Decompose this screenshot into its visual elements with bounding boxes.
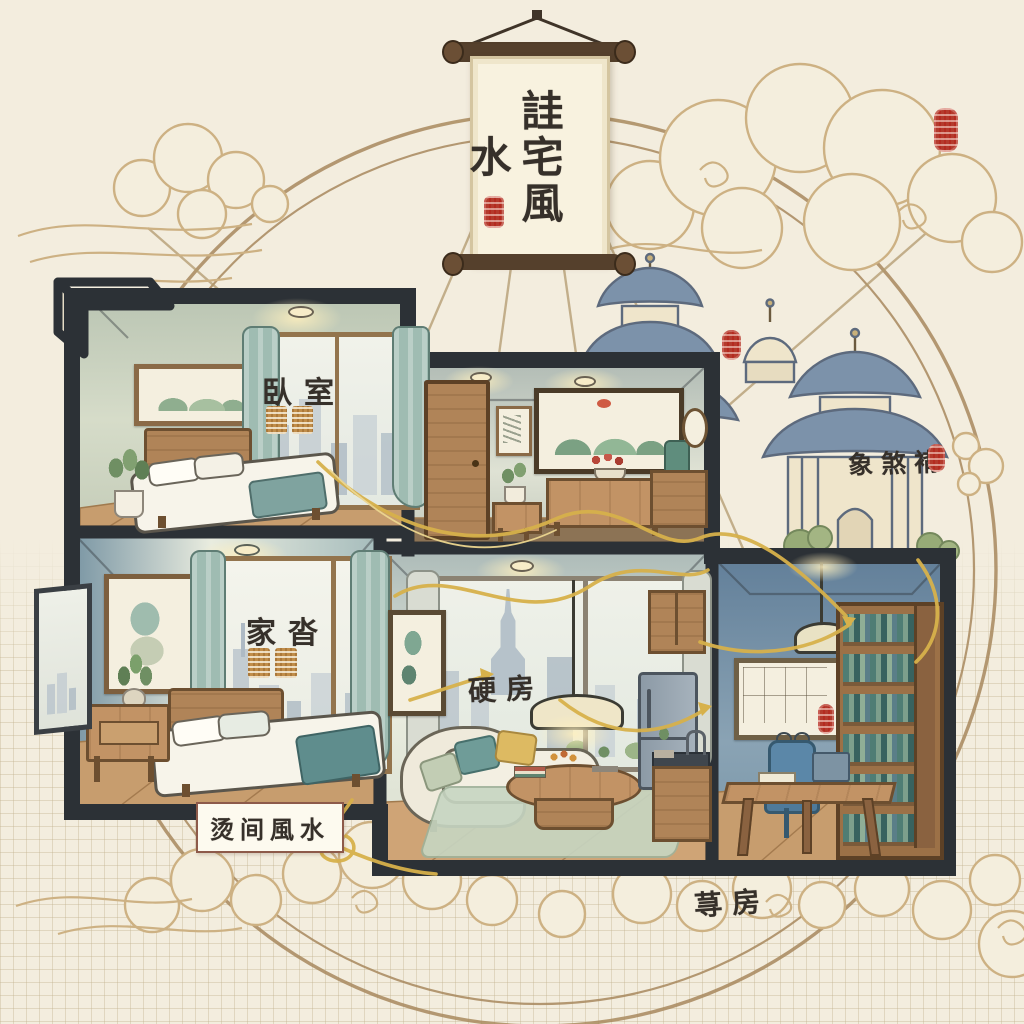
room-bedroom-upper <box>92 298 398 522</box>
bed-pillow-2 <box>217 710 271 740</box>
room-entry-hall <box>414 366 706 542</box>
wall-cabinet <box>648 590 706 654</box>
painting-mountains <box>543 419 667 455</box>
lamp-cabinet <box>650 458 702 534</box>
orange-seal-block <box>275 648 297 678</box>
laptop <box>812 752 850 782</box>
red-seal-stamp <box>484 196 504 228</box>
bonsai <box>592 744 618 772</box>
pendant-cord <box>572 580 575 698</box>
table-leg <box>524 528 529 542</box>
red-seal-stamp <box>928 444 945 472</box>
bed-leg <box>158 516 166 528</box>
desk-leg <box>737 798 754 856</box>
orange-seal-block <box>248 648 270 678</box>
label-study: 荨房 <box>693 879 772 924</box>
scroll-rod-bottom <box>452 254 622 270</box>
faucet <box>686 730 706 755</box>
desk <box>724 778 888 856</box>
fruit-plate <box>546 750 582 764</box>
ink-sketch <box>503 415 521 443</box>
entry-door <box>424 380 490 540</box>
ceiling-light <box>234 544 260 556</box>
room-study <box>718 562 942 862</box>
nightstand-body <box>86 704 170 762</box>
wall-clock <box>682 408 708 448</box>
cabinet-divider <box>675 593 678 645</box>
bed-leg <box>182 784 190 797</box>
nightstand-leg <box>94 756 100 782</box>
label-room-fengshui-text: 烫间風水 <box>210 818 330 844</box>
scroll-title-text: 詿宅風水 <box>512 70 564 246</box>
label-room-fengshui-box: 烫间風水 <box>196 802 344 853</box>
red-seal-stamp <box>934 108 958 152</box>
abstract-painting <box>388 610 446 716</box>
ceiling-light <box>574 376 596 387</box>
fridge-handle <box>647 689 651 729</box>
chart-grid <box>743 667 827 723</box>
bed <box>152 688 382 798</box>
rod-knob <box>614 252 636 276</box>
tower-spire <box>241 623 245 657</box>
plant-side-table <box>492 462 536 536</box>
nightstand-leg <box>148 756 154 782</box>
bed-leg <box>352 774 360 787</box>
table-leg <box>498 528 503 542</box>
ceiling-light <box>510 560 534 572</box>
console-leg <box>554 522 560 536</box>
desk-leg <box>802 800 812 854</box>
potted-plant <box>100 448 154 518</box>
rod-knob <box>442 40 464 64</box>
door-knob <box>472 460 479 467</box>
books-stack <box>514 766 546 778</box>
herb-pot <box>654 726 674 758</box>
painting-abstract <box>397 623 429 697</box>
painting-hills <box>145 385 245 411</box>
rod-knob <box>614 40 636 64</box>
desk-leg <box>862 798 881 856</box>
plant-pot <box>114 490 144 518</box>
room-bedroom-lower <box>78 538 374 806</box>
fengshui-home-illustration: { "scene": { "type": "illustration", "st… <box>0 0 1024 1024</box>
table-base <box>534 798 614 830</box>
nightstand <box>86 678 164 788</box>
rod-knob <box>442 252 464 276</box>
shelf-side-panel <box>914 606 935 848</box>
pendant-glow <box>788 552 858 582</box>
label-living-kitchen: 硬房 <box>467 666 545 710</box>
shutter-reflection <box>43 664 77 718</box>
red-seal-stamp <box>818 704 834 734</box>
kitchen-counter <box>652 752 706 844</box>
table-lamp <box>664 440 690 474</box>
bed <box>132 428 342 524</box>
coffee-table <box>506 750 636 830</box>
bed-leg <box>312 508 320 520</box>
orange-seal-block <box>266 406 287 434</box>
room-living-kitchen <box>386 554 706 862</box>
orange-seal-block <box>292 406 313 434</box>
title-scroll: 詿宅風水 <box>440 8 640 298</box>
small-ink-art <box>496 406 532 456</box>
counter-cabinet <box>652 766 712 842</box>
ceiling-light <box>288 306 314 318</box>
label-bedroom-lower: 家沓 <box>246 608 330 652</box>
painting-red-sun <box>597 399 611 408</box>
cabinet-body <box>650 470 708 528</box>
red-seal-stamp <box>722 330 741 360</box>
plant-leaves <box>102 448 152 492</box>
open-shutter-panel <box>34 583 92 735</box>
drawer <box>99 721 159 745</box>
